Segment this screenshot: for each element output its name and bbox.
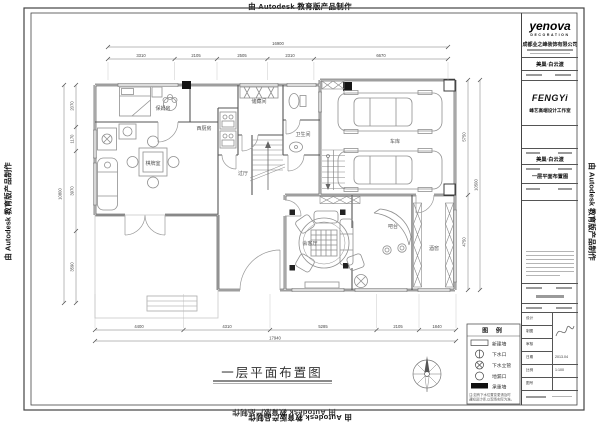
bed [120,87,151,116]
table-label-sheet-no: 图号 [526,381,533,386]
table-label-date: 日期 [526,355,533,360]
drawing-field-no-line [558,168,572,170]
room-label-nanny: 保姆房 [155,105,170,112]
dim-top-1: 3310 [136,53,146,58]
dim-bottom-total: 17940 [269,336,281,341]
company-phone-line [530,53,570,54]
legend-swatch-floor-drain [476,372,484,380]
footer-field-line [552,396,572,397]
terrace [95,215,218,318]
project-field-label-line [526,152,540,154]
drawing-title-text: 一层平面布置图 [221,366,323,380]
chaise-lounge [98,158,118,210]
studio-name: 峰艺高端设计工作室 [522,108,578,114]
legend-label-drain: 下水口 [492,351,507,358]
white-column-1 [444,80,455,91]
project-field-no-line [558,152,572,154]
phone-field-line [555,74,571,76]
dim-top-3: 2505 [237,53,247,58]
divider [522,80,578,81]
divider [522,70,578,71]
signature-scribble [554,316,576,346]
dim-top-4: 2310 [285,53,295,58]
divider [522,364,578,365]
washer [119,124,136,139]
car-1 [338,91,442,134]
dim-bottom-3: 5285 [318,324,328,329]
drawing-field-label-line [526,168,540,170]
plant-stand [98,128,117,150]
furniture [98,87,443,288]
table-label-scale: 比例 [526,368,533,373]
studio-logo: FENGYi [522,93,578,103]
dim-right-1: 5750 [462,132,467,142]
dim-left-total: 10800 [58,188,63,200]
dim-left-2: 1170 [70,134,75,144]
field-line [526,188,540,190]
footer-field-line [526,396,546,398]
divider [522,183,578,184]
toilet [289,94,306,109]
legend-label-bearing-wall: 承重墙 [492,384,507,391]
wall-ovens [220,112,236,148]
drawing-name-field: 一层平面布置图 [522,173,578,180]
divider [522,390,578,391]
field-line [526,287,542,289]
divider [522,283,578,284]
exterior-walls [95,80,455,290]
dim-right-2: 4750 [462,237,467,247]
garage-staircase [322,150,345,190]
black-column-1 [182,81,191,89]
divider [522,200,578,201]
legend-label-drain-riser: 下水立管 [492,362,511,369]
dim-left-1: 2070 [70,101,75,111]
divider [522,57,578,58]
doors [125,120,434,290]
room-label-kitchen: 西厨房 [196,125,211,132]
room-label-garage: 车库 [390,138,400,145]
cad-sheet: { "watermark": { "text": "由 Autodesk 教育版… [0,0,600,420]
company-address-line [527,49,573,51]
drawing-title: 一层平面布置图 [213,366,332,384]
car-2 [338,149,442,192]
divider [522,303,578,304]
white-column-2 [444,184,455,195]
room-label-bath: 卫生间 [295,131,310,138]
table-label-draft: 制图 [526,329,533,334]
divider [522,312,578,313]
brand-logo-sub: DECORATION [522,33,578,37]
dim-bottom-2: 4310 [222,324,232,329]
dim-bottom-4: 2105 [393,324,403,329]
legend-header: 图 例 [482,327,505,335]
legend-swatch-new-wall [471,340,488,346]
project-name-field: 美巢·白云渡 [522,156,578,163]
legend-swatch-drain-riser [476,361,484,369]
table-label-design: 设计 [526,316,533,321]
room-label-storage: 储藏间 [251,98,266,105]
dim-bottom-1: 4400 [134,324,144,329]
dim-right-total: 10500 [474,179,479,191]
divider [522,338,552,339]
tv-bench [305,282,339,288]
divider [522,164,578,165]
legend-swatch-drain [476,350,484,358]
dim-left-3: 3970 [70,186,75,196]
cellar-shelf-right [446,203,454,287]
room-label-cellar: 酒窖 [429,245,439,252]
field-line [558,188,572,190]
client-field-line [526,74,542,76]
cellar-shelf-left [414,203,422,287]
legend: 图 例 新建墙 下水口 下水立管 地漏口 承重墙 注:如有下水位置变更请及时 通… [467,324,520,404]
bar-counter [374,209,411,254]
legend-note-1: 注:如有下水位置变更请及时 [469,392,511,397]
legend-note-2: 通知设计师,以现场实际为准。 [469,397,514,402]
divider [522,125,578,126]
field-line [556,287,572,289]
washbasin [290,142,303,152]
table-value-scale: 1:100 [555,368,564,372]
table-label-check: 审核 [526,342,533,347]
signature-name-line [536,295,564,298]
project-name-top: 美巢·白云渡 [522,61,578,68]
divider [522,325,552,326]
compass-icon [413,356,441,392]
windows [93,83,456,291]
bar-armchair [346,253,365,271]
floor-plant [355,275,368,288]
divider [522,377,578,378]
dim-top-5: 6670 [376,53,386,58]
field-line [526,307,542,309]
main-staircase [250,140,285,190]
black-column-2 [343,82,352,91]
title-block: yenova DECORATION 成都业之峰装饰有限公司 美巢·白云渡 FEN… [521,13,578,405]
table-value-date: 2013.04 [555,355,568,359]
room-label-bar: 吧台 [388,223,398,230]
counter [240,87,278,98]
legend-swatch-bearing-wall [471,383,488,389]
company-name: 成都业之峰装饰有限公司 [522,41,578,48]
room-label-hall: 过厅 [238,170,248,177]
field-line [556,307,572,309]
dim-bottom-5: 1840 [432,324,442,329]
legend-label-new-wall: 新建墙 [492,341,507,348]
legend-label-floor-drain: 地漏口 [492,373,507,380]
divider [522,148,578,149]
room-label-reception: 会客厅 [302,240,317,247]
dim-left-4: 3590 [70,262,75,272]
side-table [152,87,162,97]
floor-plan-drawing: 保姆房 西厨房 储藏间 卫生间 车库 棋牌室 过厅 会客厅 吧台 酒窖 3310… [0,0,600,420]
dim-top-total: 16900 [272,41,284,46]
brand-logo: yenova [522,19,578,33]
room-label-chess: 棋牌室 [145,160,160,167]
dim-top-2: 2105 [191,53,201,58]
divider [522,351,552,352]
table-vertical-divider [552,312,553,390]
